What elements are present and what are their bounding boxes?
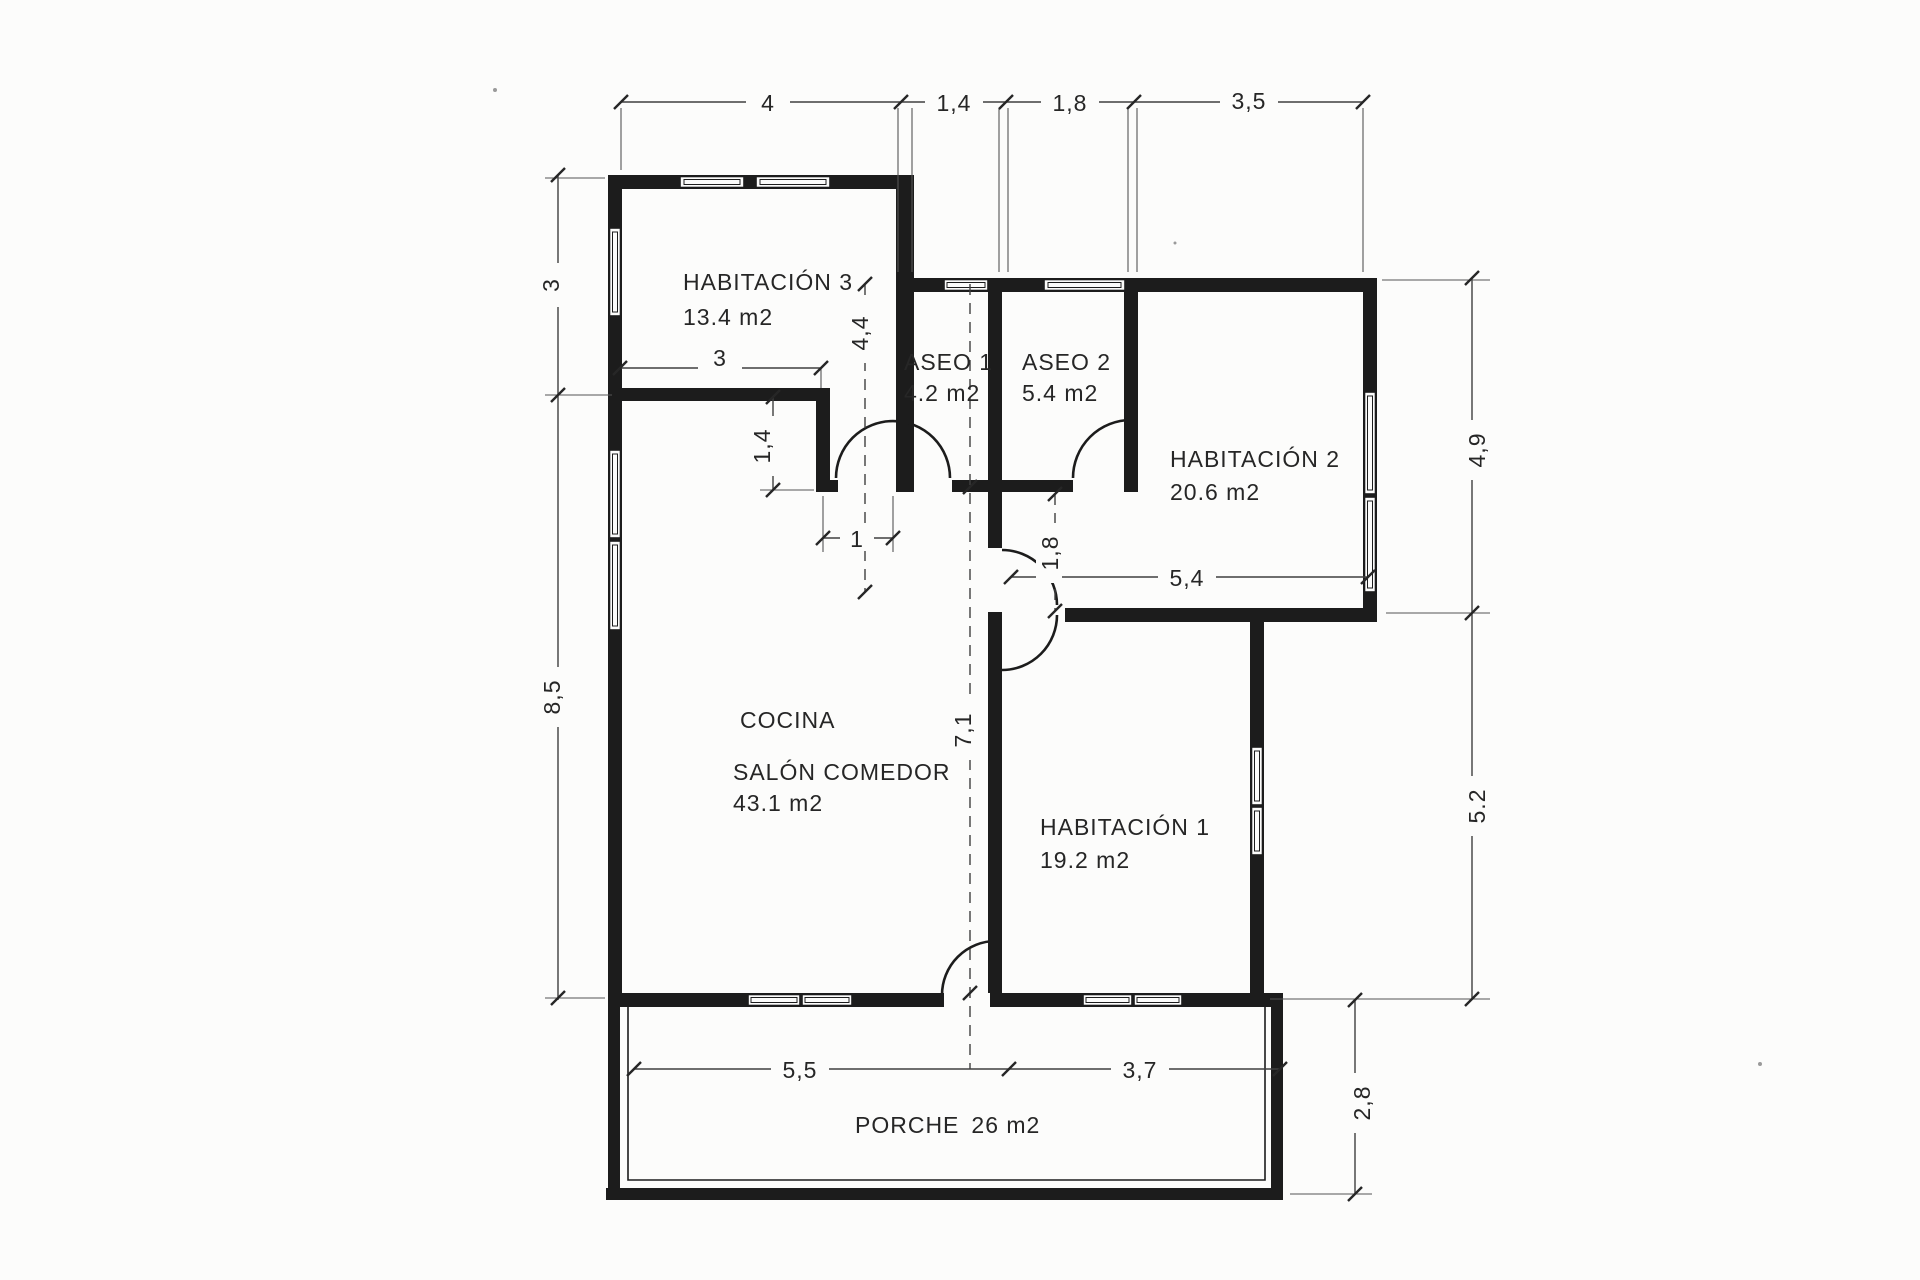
- svg-text:5.2: 5.2: [1464, 789, 1490, 824]
- dim-label-bottom-3-7: 3,7: [1111, 1056, 1169, 1083]
- door-arc-aseo2: [1073, 420, 1131, 478]
- paper-speck-2: [1758, 1062, 1762, 1066]
- svg-text:5,4: 5,4: [1170, 565, 1205, 591]
- room-label-aseo2: ASEO 2: [1022, 349, 1111, 375]
- svg-text:3: 3: [538, 278, 564, 292]
- wall-porch-right: [1271, 1000, 1283, 1200]
- svg-text:5,5: 5,5: [783, 1057, 818, 1083]
- window-salon-bottom-2: [802, 995, 852, 1006]
- svg-text:3,5: 3,5: [1232, 88, 1267, 114]
- svg-text:3,7: 3,7: [1123, 1057, 1158, 1083]
- svg-text:1,8: 1,8: [1053, 90, 1088, 116]
- room-label-habitacion1: HABITACIÓN 1: [1040, 814, 1210, 840]
- svg-text:1,4: 1,4: [937, 90, 972, 116]
- room-label-salon: SALÓN COMEDOR: [733, 759, 950, 785]
- svg-text:1,4: 1,4: [749, 429, 775, 464]
- wall-aseo2-right: [1124, 278, 1138, 492]
- window-hab1-right-1: [1252, 747, 1263, 805]
- dim-label-left-8-5: 8,5: [538, 667, 565, 727]
- window-aseo-top-1: [944, 280, 988, 291]
- wall-jog: [816, 388, 830, 492]
- svg-text:1,8: 1,8: [1037, 536, 1063, 571]
- room-area-aseo2: 5.4 m2: [1022, 380, 1098, 406]
- dim-label-left-3: 3: [537, 263, 564, 307]
- dim-label-top-1-4: 1,4: [925, 88, 983, 116]
- dim-label-right-4-9: 4,9: [1463, 420, 1490, 480]
- room-area-habitacion3: 13.4 m2: [683, 304, 773, 330]
- svg-text:1: 1: [850, 526, 864, 552]
- dim-label-int-5-4: 5,4: [1158, 564, 1216, 591]
- dim-label-int-3: 3: [698, 344, 742, 371]
- window-hab1-bottom-1: [1083, 995, 1132, 1006]
- wall-porch-left: [608, 1007, 620, 1200]
- room-area-habitacion2: 20.6 m2: [1170, 479, 1260, 505]
- window-hab1-bottom-2: [1134, 995, 1182, 1006]
- svg-text:2,8: 2,8: [1349, 1086, 1375, 1121]
- paper-speck-1: [493, 88, 497, 92]
- dim-label-top-4: 4: [746, 88, 790, 116]
- svg-text:8,5: 8,5: [539, 680, 565, 715]
- dim-label-int-1-8: 1,8: [1036, 523, 1063, 583]
- svg-text:7,1: 7,1: [950, 713, 976, 748]
- dim-label-right-5-2: 5.2: [1463, 776, 1490, 836]
- wall-hab2-bottom: [1065, 608, 1377, 622]
- room-area-aseo1: 4.2 m2: [904, 380, 980, 406]
- doors: [836, 420, 1131, 995]
- door-arc-salon-porch: [942, 941, 996, 995]
- porch-inner-edge: [628, 1007, 1265, 1180]
- wall-aseo2-bottom: [1002, 480, 1073, 492]
- dim-label-int-7-1: 7,1: [949, 700, 976, 760]
- dim-label-top-3-5: 3,5: [1220, 86, 1278, 114]
- dim-label-porch-2-8: 2,8: [1348, 1073, 1375, 1133]
- room-label-habitacion3: HABITACIÓN 3: [683, 269, 853, 295]
- window-salon-left-1: [610, 450, 621, 538]
- svg-text:3: 3: [713, 345, 727, 371]
- door-arc-hab1: [1002, 615, 1057, 670]
- floor-plan-canvas: 4 1,4 1,8 3,5 3 8,5 4,9 5.2: [0, 0, 1920, 1280]
- paper-speck-3: [1174, 242, 1177, 245]
- dim-label-int-1-4: 1,4: [748, 416, 775, 476]
- wall-hab3-right: [896, 175, 914, 492]
- window-hab3-top-2: [756, 177, 830, 188]
- dim-label-int-1: 1: [840, 526, 874, 552]
- room-label-porche: PORCHE26 m2: [855, 1112, 1040, 1138]
- room-area-salon: 43.1 m2: [733, 790, 823, 816]
- room-area-habitacion1: 19.2 m2: [1040, 847, 1130, 873]
- window-salon-left-2: [610, 541, 621, 630]
- dimension-lines: [545, 95, 1490, 1201]
- wall-jog-stub: [816, 480, 838, 492]
- wall-porch-bottom: [606, 1188, 1283, 1200]
- window-aseo-top-2: [1044, 280, 1125, 291]
- svg-text:4,9: 4,9: [1464, 433, 1490, 468]
- dim-label-int-4-4: 4,4: [846, 303, 873, 363]
- window-hab1-right-2: [1252, 807, 1263, 855]
- svg-text:4: 4: [761, 90, 775, 116]
- window-hab3-top-1: [680, 177, 744, 188]
- wall-divider-lower: [988, 612, 1002, 993]
- wall-hab3-bottom: [608, 388, 830, 401]
- svg-text:4,4: 4,4: [847, 316, 873, 351]
- window-hab2-right-1: [1365, 392, 1376, 494]
- window-salon-bottom-1: [748, 995, 800, 1006]
- room-label-cocina: COCINA: [740, 707, 835, 733]
- dim-label-bottom-5-5: 5,5: [771, 1056, 829, 1083]
- wall-divider-upper: [988, 278, 1002, 548]
- dim-label-top-1-8: 1,8: [1041, 88, 1099, 116]
- window-hab3-left: [610, 228, 621, 316]
- room-label-aseo1: ASEO 1: [904, 349, 993, 375]
- door-arc-hall-aseo1: [836, 421, 950, 478]
- room-label-habitacion2: HABITACIÓN 2: [1170, 446, 1340, 472]
